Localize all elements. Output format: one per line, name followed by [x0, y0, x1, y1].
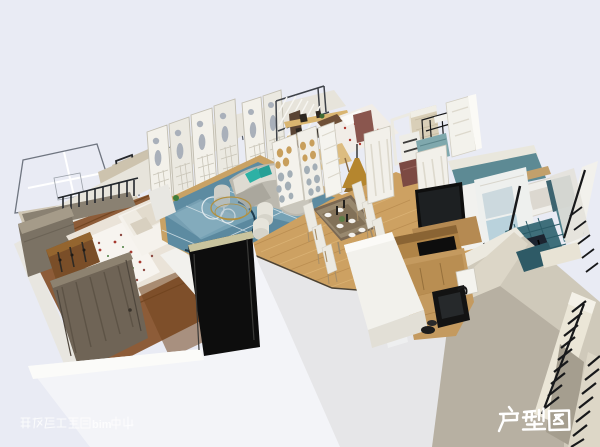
- svg-text:bim: bim: [92, 419, 112, 431]
